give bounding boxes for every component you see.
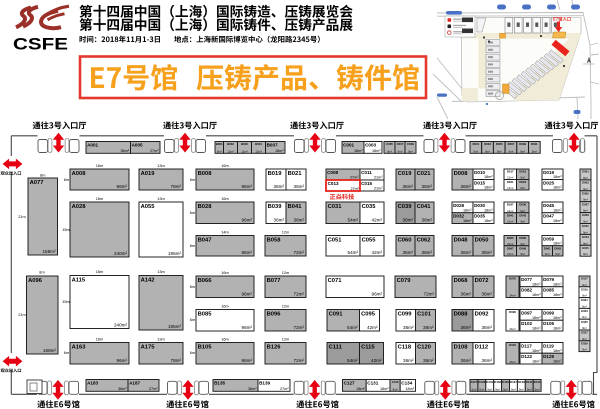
svg-text:18m²: 18m² xyxy=(463,219,472,223)
svg-text:16m: 16m xyxy=(96,337,104,342)
svg-text:A187: A187 xyxy=(129,380,140,385)
svg-text:D082: D082 xyxy=(521,288,532,293)
svg-text:36m²: 36m² xyxy=(422,218,433,223)
svg-text:D010: D010 xyxy=(474,170,485,175)
svg-text:13m: 13m xyxy=(157,337,165,342)
svg-text:9m²: 9m² xyxy=(583,176,588,180)
svg-text:96m²: 96m² xyxy=(242,184,253,189)
svg-text:9m²: 9m² xyxy=(555,252,560,256)
svg-text:D001: D001 xyxy=(473,142,480,146)
svg-text:9m²: 9m² xyxy=(472,387,477,391)
svg-text:16m: 16m xyxy=(96,196,104,201)
svg-text:96m²: 96m² xyxy=(242,325,253,330)
svg-text:21m: 21m xyxy=(18,214,26,219)
svg-text:18m²: 18m² xyxy=(553,360,562,364)
svg-text:96m²: 96m² xyxy=(242,218,253,223)
svg-text:E003: E003 xyxy=(582,181,589,185)
svg-text:C001: C001 xyxy=(343,142,354,147)
svg-text:C118: C118 xyxy=(398,345,412,351)
svg-text:42m²: 42m² xyxy=(372,218,383,223)
svg-text:27m²: 27m² xyxy=(150,149,159,153)
svg-text:24m²: 24m² xyxy=(509,327,515,331)
svg-text:18m²: 18m² xyxy=(532,293,541,297)
svg-text:12m: 12m xyxy=(282,270,290,275)
svg-text:8m: 8m xyxy=(39,270,44,275)
svg-text:24m²: 24m² xyxy=(509,360,515,364)
svg-text:8m: 8m xyxy=(40,173,45,178)
svg-text:16m: 16m xyxy=(221,196,229,201)
svg-text:16m: 16m xyxy=(221,163,229,168)
svg-text:C009: C009 xyxy=(407,142,414,146)
svg-text:C095: C095 xyxy=(361,312,376,318)
svg-text:D076: D076 xyxy=(509,277,516,281)
svg-text:E029: E029 xyxy=(581,341,588,345)
svg-text:9m²: 9m² xyxy=(582,315,587,319)
svg-text:12m: 12m xyxy=(282,304,290,309)
svg-text:B135: B135 xyxy=(214,380,225,385)
svg-text:A019: A019 xyxy=(141,171,156,177)
svg-text:C101: C101 xyxy=(417,312,432,318)
svg-text:9m²: 9m² xyxy=(583,220,588,224)
svg-text:E019: E019 xyxy=(581,287,588,291)
svg-text:C133: C133 xyxy=(392,380,399,384)
svg-text:9m²: 9m² xyxy=(583,241,588,245)
svg-text:6m: 6m xyxy=(190,350,195,355)
svg-text:9m²: 9m² xyxy=(582,304,587,308)
svg-text:C131: C131 xyxy=(367,380,378,385)
svg-text:9m²: 9m² xyxy=(497,149,502,153)
svg-text:D096: D096 xyxy=(509,310,516,314)
svg-text:18m²: 18m² xyxy=(553,208,562,212)
svg-text:18m²: 18m² xyxy=(275,149,284,153)
svg-text:D125: D125 xyxy=(543,354,554,359)
svg-text:54m²: 54m² xyxy=(348,218,359,223)
svg-text:D137: D137 xyxy=(510,380,517,384)
svg-text:C041: C041 xyxy=(417,204,432,210)
svg-text:E027: E027 xyxy=(581,331,588,335)
svg-text:42m²: 42m² xyxy=(371,358,382,363)
svg-text:D133: D133 xyxy=(494,380,501,384)
svg-text:36m²: 36m² xyxy=(403,358,414,363)
svg-text:C013: C013 xyxy=(328,181,339,186)
svg-text:9m²: 9m² xyxy=(520,149,525,153)
svg-text:D021: D021 xyxy=(507,180,514,184)
svg-text:D143: D143 xyxy=(534,380,541,384)
svg-text:18m²: 18m² xyxy=(354,149,363,153)
svg-text:36m²: 36m² xyxy=(294,218,305,223)
svg-text:D019: D019 xyxy=(543,170,554,175)
svg-text:54m²: 54m² xyxy=(347,358,358,363)
svg-text:72m²: 72m² xyxy=(294,250,305,255)
svg-text:6m: 6m xyxy=(190,243,195,248)
svg-text:18m²: 18m² xyxy=(532,282,541,286)
svg-text:9m²: 9m² xyxy=(511,387,516,391)
svg-text:12m²: 12m² xyxy=(227,149,233,153)
svg-text:B085: B085 xyxy=(198,312,213,318)
svg-text:D018: D018 xyxy=(519,170,526,174)
svg-text:D085: D085 xyxy=(543,288,554,293)
svg-text:D045: D045 xyxy=(543,203,554,208)
svg-text:36m²: 36m² xyxy=(403,250,414,255)
svg-text:12m: 12m xyxy=(282,230,290,235)
svg-text:B019: B019 xyxy=(268,171,283,177)
svg-text:36m²: 36m² xyxy=(423,358,434,363)
svg-text:18m²: 18m² xyxy=(553,282,562,286)
svg-text:B096: B096 xyxy=(267,312,282,318)
svg-text:A096: A096 xyxy=(28,278,43,284)
svg-text:54m²: 54m² xyxy=(347,325,358,330)
svg-text:C127: C127 xyxy=(344,380,355,385)
svg-text:9m²: 9m² xyxy=(583,230,588,234)
svg-text:27m²: 27m² xyxy=(149,387,158,391)
svg-text:D061: D061 xyxy=(544,246,551,250)
svg-text:D041: D041 xyxy=(507,213,514,217)
svg-text:C115: C115 xyxy=(361,345,375,351)
svg-text:36m²: 36m² xyxy=(422,184,433,189)
svg-text:C062: C062 xyxy=(417,238,431,244)
svg-text:C111: C111 xyxy=(329,345,343,351)
svg-text:18m²: 18m² xyxy=(553,241,562,245)
svg-text:36m²: 36m² xyxy=(461,358,472,363)
svg-text:27m²: 27m² xyxy=(280,387,289,391)
svg-text:D122: D122 xyxy=(521,354,532,359)
svg-text:15m: 15m xyxy=(62,299,70,304)
svg-text:6m: 6m xyxy=(64,177,69,182)
svg-text:E001: E001 xyxy=(582,170,589,174)
svg-text:D129: D129 xyxy=(479,380,486,384)
svg-text:B007: B007 xyxy=(267,142,278,147)
svg-text:B058: B058 xyxy=(267,238,282,244)
svg-text:B039: B039 xyxy=(268,204,283,210)
svg-text:18m²: 18m² xyxy=(553,316,562,320)
svg-text:C021: C021 xyxy=(417,171,432,177)
svg-text:D025: D025 xyxy=(543,180,554,185)
svg-text:9m²: 9m² xyxy=(509,149,514,153)
svg-text:18m²: 18m² xyxy=(380,387,389,391)
svg-text:9m²: 9m² xyxy=(495,387,500,391)
svg-text:A001: A001 xyxy=(87,142,98,147)
svg-text:9m²: 9m² xyxy=(408,149,413,153)
svg-text:D105: D105 xyxy=(543,321,554,326)
svg-text:B047: B047 xyxy=(198,238,212,244)
svg-text:C071: C071 xyxy=(328,278,343,284)
svg-text:D037: D037 xyxy=(507,203,514,207)
svg-text:B001: B001 xyxy=(216,142,223,146)
svg-text:36m²: 36m² xyxy=(482,250,493,255)
svg-text:12m²: 12m² xyxy=(507,176,513,180)
svg-text:18m²: 18m² xyxy=(553,175,562,179)
svg-text:D015: D015 xyxy=(474,180,485,185)
svg-text:D088: D088 xyxy=(454,312,469,318)
svg-text:D112: D112 xyxy=(475,345,489,351)
svg-text:C039: C039 xyxy=(398,204,413,210)
svg-text:D127: D127 xyxy=(471,380,478,384)
svg-text:C005: C005 xyxy=(386,142,393,146)
svg-text:D035: D035 xyxy=(474,214,485,219)
svg-text:D066: D066 xyxy=(519,236,526,240)
svg-text:A142: A142 xyxy=(141,278,155,284)
svg-text:18m²: 18m² xyxy=(484,175,493,179)
svg-text:B066: B066 xyxy=(198,278,213,284)
svg-text:D119: D119 xyxy=(543,343,554,348)
svg-text:A115: A115 xyxy=(72,278,86,284)
svg-text:9m²: 9m² xyxy=(583,252,588,256)
svg-text:9m²: 9m² xyxy=(520,209,525,213)
svg-text:B041: B041 xyxy=(288,204,303,210)
svg-text:6m: 6m xyxy=(190,177,195,182)
svg-text:18m²: 18m² xyxy=(553,349,562,353)
svg-text:C120: C120 xyxy=(417,345,431,351)
svg-text:A163: A163 xyxy=(72,345,87,351)
svg-text:240m²: 240m² xyxy=(114,251,127,256)
svg-text:9m²: 9m² xyxy=(520,186,525,190)
svg-text:D108: D108 xyxy=(454,345,469,351)
svg-text:72m²: 72m² xyxy=(294,358,305,363)
svg-text:C051: C051 xyxy=(328,238,343,244)
svg-text:9m²: 9m² xyxy=(583,209,588,213)
svg-text:B077: B077 xyxy=(267,278,281,284)
svg-text:E005: E005 xyxy=(582,191,589,195)
svg-text:9m²: 9m² xyxy=(519,387,524,391)
svg-text:12m²: 12m² xyxy=(507,209,513,213)
svg-text:18m²: 18m² xyxy=(532,316,541,320)
svg-text:D135: D135 xyxy=(502,380,509,384)
svg-text:16m: 16m xyxy=(221,304,229,309)
svg-text:6m: 6m xyxy=(190,317,195,322)
svg-text:36m²: 36m² xyxy=(482,358,493,363)
svg-text:12m²: 12m² xyxy=(507,242,513,246)
svg-text:36m²: 36m² xyxy=(461,184,472,189)
svg-text:C011: C011 xyxy=(361,170,372,175)
svg-text:B126: B126 xyxy=(267,345,282,351)
svg-text:C060: C060 xyxy=(398,238,412,244)
svg-text:240m²: 240m² xyxy=(114,323,127,328)
svg-text:D139: D139 xyxy=(518,380,525,384)
svg-text:C007: C007 xyxy=(397,142,404,146)
svg-text:D102: D102 xyxy=(521,321,532,326)
svg-text:6m: 6m xyxy=(64,350,69,355)
svg-text:D063: D063 xyxy=(554,246,561,250)
svg-text:27m²: 27m² xyxy=(351,187,360,191)
svg-text:36m²: 36m² xyxy=(423,325,434,330)
svg-text:A008: A008 xyxy=(72,171,87,177)
svg-text:A183: A183 xyxy=(87,380,98,385)
svg-text:18m²: 18m² xyxy=(463,208,472,212)
svg-text:12m²: 12m² xyxy=(241,149,247,153)
svg-text:D009: D009 xyxy=(519,142,526,146)
svg-text:9m²: 9m² xyxy=(398,149,403,153)
svg-text:B021: B021 xyxy=(288,171,303,177)
svg-text:D079: D079 xyxy=(543,277,554,282)
svg-text:D050: D050 xyxy=(475,238,489,244)
svg-text:D117: D117 xyxy=(521,343,532,348)
svg-text:A055: A055 xyxy=(141,204,156,210)
svg-text:12m²: 12m² xyxy=(507,220,513,224)
svg-text:12m: 12m xyxy=(282,337,290,342)
svg-text:18m²: 18m² xyxy=(553,293,562,297)
svg-text:36m²: 36m² xyxy=(403,218,414,223)
svg-text:D008: D008 xyxy=(454,171,469,177)
svg-text:D017: D017 xyxy=(507,170,514,174)
svg-text:21m²: 21m² xyxy=(374,187,383,191)
svg-text:D141: D141 xyxy=(526,380,533,384)
svg-text:E025: E025 xyxy=(581,320,588,324)
svg-text:6m: 6m xyxy=(190,210,195,215)
svg-text:42m²: 42m² xyxy=(372,250,383,255)
svg-text:D039: D039 xyxy=(519,203,526,207)
svg-text:96m²: 96m² xyxy=(242,358,253,363)
svg-text:14m: 14m xyxy=(221,230,229,235)
svg-text:D003: D003 xyxy=(484,142,491,146)
svg-text:36m²: 36m² xyxy=(248,387,257,391)
svg-text:D067: D067 xyxy=(507,246,514,250)
svg-text:9m²: 9m² xyxy=(583,187,588,191)
svg-text:24m²: 24m² xyxy=(509,294,515,298)
svg-text:12m²: 12m² xyxy=(507,252,513,256)
svg-text:15m: 15m xyxy=(62,227,70,232)
svg-text:21m²: 21m² xyxy=(374,176,383,180)
svg-text:158m²: 158m² xyxy=(42,249,55,254)
svg-text:C079: C079 xyxy=(397,278,412,284)
svg-text:36m²: 36m² xyxy=(461,325,472,330)
svg-text:D007: D007 xyxy=(508,142,515,146)
svg-text:9m²: 9m² xyxy=(473,149,478,153)
svg-text:195m²: 195m² xyxy=(168,251,181,256)
svg-text:E007: E007 xyxy=(582,202,589,206)
svg-text:36m²: 36m² xyxy=(294,184,305,189)
svg-text:E015: E015 xyxy=(582,246,589,250)
svg-text:CSFE: CSFE xyxy=(13,35,68,53)
svg-text:18m²: 18m² xyxy=(553,219,562,223)
svg-text:D072: D072 xyxy=(475,278,489,284)
svg-text:18m²: 18m² xyxy=(484,208,493,212)
svg-text:C134: C134 xyxy=(401,380,412,385)
svg-text:D048: D048 xyxy=(454,238,469,244)
svg-text:9m²: 9m² xyxy=(582,337,587,341)
svg-text:9m²: 9m² xyxy=(583,198,588,202)
svg-text:D011: D011 xyxy=(531,142,538,146)
svg-text:9m²: 9m² xyxy=(393,387,398,391)
svg-text:9m²: 9m² xyxy=(520,242,525,246)
svg-text:A028: A028 xyxy=(72,204,87,210)
svg-text:36m²: 36m² xyxy=(403,184,414,189)
svg-text:18m²: 18m² xyxy=(405,387,414,391)
svg-text:36m²: 36m² xyxy=(274,184,285,189)
svg-text:E009: E009 xyxy=(582,213,589,217)
svg-text:B008: B008 xyxy=(198,171,213,177)
svg-text:D077: D077 xyxy=(521,277,532,282)
svg-text:18m²: 18m² xyxy=(532,360,541,364)
svg-text:D097: D097 xyxy=(521,310,532,315)
svg-text:72m²: 72m² xyxy=(294,325,305,330)
svg-text:D069: D069 xyxy=(519,246,526,250)
svg-text:A175: A175 xyxy=(141,345,156,351)
svg-text:B105: B105 xyxy=(198,345,213,351)
svg-text:195m²: 195m² xyxy=(168,324,181,329)
svg-text:C003: C003 xyxy=(365,142,376,147)
svg-text:18m²: 18m² xyxy=(356,387,365,391)
svg-text:9m²: 9m² xyxy=(387,149,392,153)
svg-text:E021: E021 xyxy=(581,298,588,302)
svg-text:78m²: 78m² xyxy=(171,184,182,189)
svg-text:36m²: 36m² xyxy=(461,250,472,255)
svg-text:9m²: 9m² xyxy=(520,220,525,224)
svg-text:A077: A077 xyxy=(30,180,44,186)
svg-text:36m²: 36m² xyxy=(403,325,414,330)
svg-text:D028: D028 xyxy=(453,203,464,208)
svg-text:D047: D047 xyxy=(543,214,554,219)
svg-text:D065: D065 xyxy=(507,236,514,240)
svg-text:9m²: 9m² xyxy=(545,252,550,256)
svg-text:54m²: 54m² xyxy=(348,250,359,255)
svg-text:18m²: 18m² xyxy=(553,327,562,331)
svg-text:D116: D116 xyxy=(509,343,516,347)
svg-text:B002: B002 xyxy=(227,142,234,146)
svg-text:78m²: 78m² xyxy=(171,358,182,363)
svg-text:B003: B003 xyxy=(241,142,248,146)
svg-text:D068: D068 xyxy=(454,278,469,284)
svg-text:9m²: 9m² xyxy=(520,252,525,256)
svg-text:72m²: 72m² xyxy=(294,292,305,297)
svg-text:36m²: 36m² xyxy=(120,149,129,153)
svg-text:9m²: 9m² xyxy=(527,387,532,391)
svg-text:36m²: 36m² xyxy=(118,387,127,391)
svg-text:18m²: 18m² xyxy=(553,186,562,190)
svg-text:9m²: 9m² xyxy=(503,387,508,391)
svg-text:C055: C055 xyxy=(362,238,377,244)
svg-text:96m²: 96m² xyxy=(372,292,383,297)
svg-text:168m²: 168m² xyxy=(43,348,56,353)
svg-text:D131: D131 xyxy=(486,380,493,384)
svg-text:C035: C035 xyxy=(362,204,377,210)
svg-text:72m²: 72m² xyxy=(424,292,435,297)
svg-text:C031: C031 xyxy=(328,204,343,210)
svg-text:C008: C008 xyxy=(327,170,338,175)
svg-text:9m²: 9m² xyxy=(582,348,587,352)
svg-text:D032: D032 xyxy=(453,214,464,219)
svg-text:D005: D005 xyxy=(496,142,503,146)
svg-text:9m²: 9m² xyxy=(582,294,587,298)
svg-text:36m²: 36m² xyxy=(274,218,285,223)
svg-text:9m²: 9m² xyxy=(487,387,492,391)
svg-text:27m²: 27m² xyxy=(350,176,359,180)
svg-text:9m²: 9m² xyxy=(217,149,222,153)
svg-text:D030: D030 xyxy=(474,203,485,208)
svg-text:36m²: 36m² xyxy=(422,250,433,255)
svg-text:12m²: 12m² xyxy=(507,186,513,190)
svg-text:9m²: 9m² xyxy=(479,387,484,391)
svg-text:9m²: 9m² xyxy=(532,149,537,153)
svg-text:C091: C091 xyxy=(329,312,344,318)
svg-text:E013: E013 xyxy=(582,235,589,239)
svg-text:9m²: 9m² xyxy=(485,149,490,153)
svg-text:A005: A005 xyxy=(132,142,143,147)
svg-text:9m²: 9m² xyxy=(582,326,587,330)
svg-text:18m²: 18m² xyxy=(484,186,493,190)
svg-text:13m: 13m xyxy=(157,163,165,168)
svg-text:9m²: 9m² xyxy=(520,176,525,180)
svg-text:B139: B139 xyxy=(259,380,270,385)
svg-text:B028: B028 xyxy=(198,204,213,210)
svg-text:C099: C099 xyxy=(398,312,413,318)
svg-text:12m²: 12m² xyxy=(255,149,261,153)
svg-text:E017: E017 xyxy=(581,277,588,281)
svg-text:96m²: 96m² xyxy=(117,358,128,363)
svg-text:21m: 21m xyxy=(18,312,26,317)
svg-text:18m²: 18m² xyxy=(532,349,541,353)
svg-text:9m²: 9m² xyxy=(582,283,587,287)
svg-text:16m: 16m xyxy=(221,270,229,275)
